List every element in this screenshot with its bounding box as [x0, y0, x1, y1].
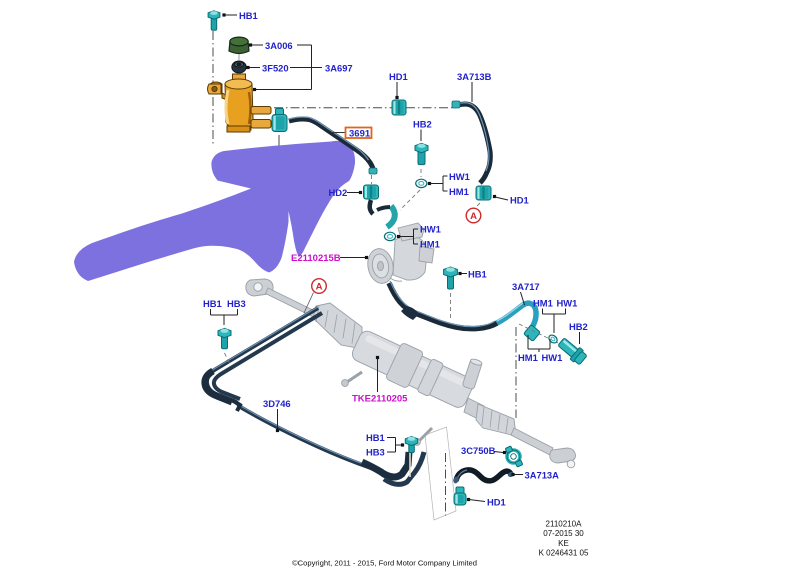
svg-text:HD1: HD1 — [389, 71, 408, 82]
svg-text:HB2: HB2 — [569, 321, 588, 332]
svg-text:3A713B: 3A713B — [457, 71, 492, 82]
svg-text:A: A — [470, 211, 477, 222]
svg-text:3C750B: 3C750B — [461, 445, 496, 456]
svg-text:HM1: HM1 — [533, 298, 553, 309]
svg-text:HM1: HM1 — [518, 352, 538, 363]
svg-text:HW1: HW1 — [449, 171, 470, 182]
svg-text:HD1: HD1 — [510, 195, 529, 206]
svg-text:A: A — [316, 281, 323, 292]
svg-text:3A006: 3A006 — [265, 40, 293, 51]
svg-text:E2110215B: E2110215B — [291, 253, 341, 264]
svg-text:HM1: HM1 — [449, 186, 469, 197]
svg-text:HW1: HW1 — [420, 224, 441, 235]
svg-text:07-2015 30: 07-2015 30 — [543, 529, 584, 538]
svg-text:HB2: HB2 — [413, 119, 432, 130]
svg-text:TKE2110205: TKE2110205 — [352, 394, 408, 405]
svg-text:HW1: HW1 — [557, 298, 578, 309]
svg-text:3A697: 3A697 — [325, 63, 353, 74]
svg-text:HW1: HW1 — [542, 352, 563, 363]
svg-text:HD1: HD1 — [487, 497, 506, 508]
svg-text:HB1: HB1 — [468, 269, 487, 280]
svg-text:KE: KE — [558, 539, 569, 548]
svg-text:HB3: HB3 — [227, 298, 246, 309]
svg-text:HM1: HM1 — [420, 239, 440, 250]
svg-text:2110210A: 2110210A — [546, 520, 583, 529]
svg-text:HB1: HB1 — [239, 10, 258, 21]
svg-text:HB1: HB1 — [203, 298, 222, 309]
svg-text:3691: 3691 — [349, 129, 371, 140]
svg-text:3A717: 3A717 — [512, 281, 540, 292]
svg-text:K 0246431 05: K 0246431 05 — [539, 549, 589, 558]
svg-text:3A713A: 3A713A — [525, 470, 560, 481]
svg-text:HD2: HD2 — [329, 187, 348, 198]
svg-text:HB1: HB1 — [366, 432, 385, 443]
svg-text:HB3: HB3 — [366, 447, 385, 458]
svg-text:3F520: 3F520 — [262, 63, 289, 74]
svg-text:©Copyright, 2011 - 2015, Ford: ©Copyright, 2011 - 2015, Ford Motor Comp… — [292, 559, 477, 568]
svg-text:3D746: 3D746 — [263, 398, 291, 409]
